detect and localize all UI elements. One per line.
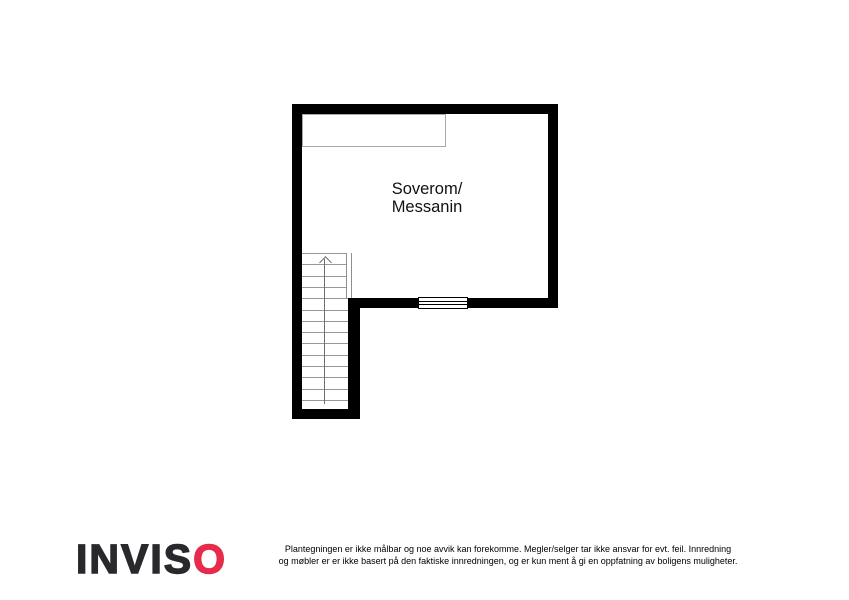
stair-treads [302, 253, 348, 409]
stair-tread-line [302, 343, 348, 344]
wall-left [292, 104, 302, 419]
disclaimer-line2: og møbler er er ikke basert på den fakti… [268, 555, 748, 567]
stair-tread-line [302, 276, 348, 277]
disclaimer-line1: Plantegningen er ikke målbar og noe avvi… [268, 543, 748, 555]
logo-text-dark: INVIS [76, 536, 193, 582]
room-label: Soverom/ Messanin [347, 180, 507, 216]
railing-line [419, 304, 467, 305]
wall-bottom-left-segment [351, 298, 418, 308]
stair-tread-line [302, 355, 348, 356]
stair-tread-line [302, 298, 348, 299]
stair-tread-line [302, 400, 348, 401]
stair-shaft-wall-bottom [292, 409, 360, 419]
wall-bottom-right-segment [468, 298, 558, 308]
stair-tread-line [302, 377, 348, 378]
stair-tread-line [302, 389, 348, 390]
railing-line [419, 301, 467, 302]
stair-tread-line [302, 321, 348, 322]
wall-right [548, 104, 558, 308]
railing-opening-symbol [418, 297, 468, 309]
stair-divider-lines [346, 253, 352, 298]
disclaimer: Plantegningen er ikke målbar og noe avvi… [268, 543, 748, 567]
floorplan-page: Soverom/ Messanin INVISO Plantegningen e… [0, 0, 849, 600]
wall-top [292, 104, 558, 114]
stair-tread-line [302, 287, 348, 288]
stair-tread-line [302, 253, 348, 254]
stair-tread-line [302, 366, 348, 367]
stair-shaft-wall-right [348, 298, 360, 409]
room-label-line2: Messanin [347, 198, 507, 216]
closet-outline [302, 114, 446, 147]
room-label-line1: Soverom/ [347, 180, 507, 198]
stair-tread-line [302, 332, 348, 333]
inviso-logo: INVISO [76, 536, 227, 583]
stair-tread-line [302, 310, 348, 311]
stair-arrow-line [324, 259, 325, 404]
logo-letter-o: O [193, 536, 227, 582]
